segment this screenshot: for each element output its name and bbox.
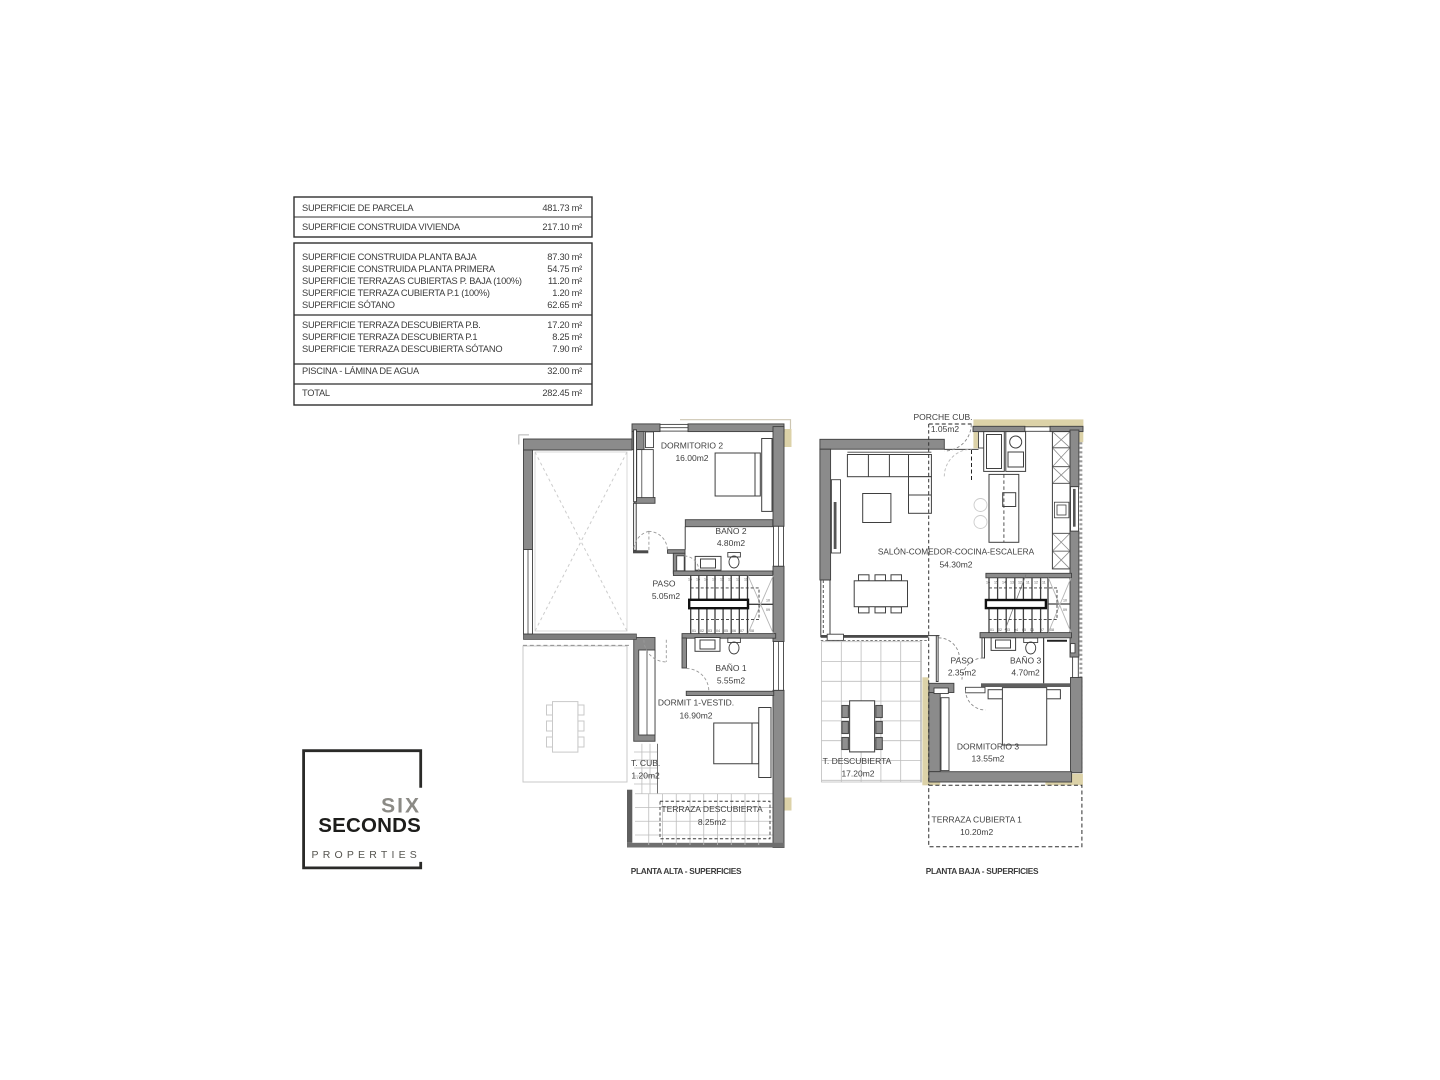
svg-text:12: 12 xyxy=(1034,581,1038,585)
svg-text:SUPERFICIE TERRAZAS CUBIERTAS: SUPERFICIE TERRAZAS CUBIERTAS P. BAJA (1… xyxy=(302,276,522,286)
svg-text:DORMIT 1-VESTID.: DORMIT 1-VESTID. xyxy=(658,698,734,708)
svg-text:17.20m2: 17.20m2 xyxy=(841,769,874,779)
svg-text:PASO: PASO xyxy=(951,656,974,666)
svg-text:DORMITORIO 2: DORMITORIO 2 xyxy=(661,441,723,451)
svg-text:8.25m2: 8.25m2 xyxy=(698,817,727,827)
svg-text:BAÑO 3: BAÑO 3 xyxy=(1010,656,1041,666)
svg-text:7.90 m²: 7.90 m² xyxy=(552,344,582,354)
svg-text:12: 12 xyxy=(720,578,724,582)
svg-text:SUPERFICIE TERRAZA DESCUBIERTA: SUPERFICIE TERRAZA DESCUBIERTA P.1 xyxy=(302,332,477,342)
svg-text:11.20 m²: 11.20 m² xyxy=(548,276,582,286)
svg-text:2.35m2: 2.35m2 xyxy=(948,668,977,678)
svg-text:SUPERFICIE DE PARCELA: SUPERFICIE DE PARCELA xyxy=(302,203,414,213)
svg-text:SUPERFICIE CONSTRUIDA PLANTA B: SUPERFICIE CONSTRUIDA PLANTA BAJA xyxy=(302,252,478,262)
svg-text:03: 03 xyxy=(1006,628,1010,632)
svg-text:1.20 m²: 1.20 m² xyxy=(552,288,582,298)
svg-text:06: 06 xyxy=(1030,628,1034,632)
svg-text:13.55m2: 13.55m2 xyxy=(971,754,1004,764)
svg-text:SUPERFICIE TERRAZA DESCUBIERTA: SUPERFICIE TERRAZA DESCUBIERTA SÓTANO xyxy=(302,344,502,354)
svg-text:14: 14 xyxy=(1002,581,1006,585)
svg-text:16: 16 xyxy=(986,581,990,585)
svg-text:05: 05 xyxy=(724,629,728,633)
svg-text:06: 06 xyxy=(732,629,736,633)
svg-text:15: 15 xyxy=(994,581,998,585)
svg-text:TERRAZA CUBIERTA 1: TERRAZA CUBIERTA 1 xyxy=(932,815,1023,825)
svg-text:TOTAL: TOTAL xyxy=(302,388,330,398)
svg-text:PLANTA BAJA - SUPERFICIES: PLANTA BAJA - SUPERFICIES xyxy=(926,866,1039,876)
svg-text:5.05m2: 5.05m2 xyxy=(652,591,681,601)
svg-text:54.75 m²: 54.75 m² xyxy=(547,264,582,274)
svg-text:SECONDS: SECONDS xyxy=(318,814,421,837)
svg-text:11: 11 xyxy=(1042,581,1046,585)
svg-text:05: 05 xyxy=(1022,628,1026,632)
svg-text:13: 13 xyxy=(712,578,716,582)
svg-text:13: 13 xyxy=(1010,581,1014,585)
svg-text:08: 08 xyxy=(1050,628,1054,632)
svg-text:54.30m2: 54.30m2 xyxy=(939,560,972,570)
svg-text:01: 01 xyxy=(692,629,696,633)
svg-text:DORMITORIO 3: DORMITORIO 3 xyxy=(957,742,1019,752)
svg-text:481.73 m²: 481.73 m² xyxy=(542,203,582,213)
svg-text:PLANTA ALTA - SUPERFICIES: PLANTA ALTA - SUPERFICIES xyxy=(631,866,742,876)
svg-text:10: 10 xyxy=(1063,599,1067,603)
svg-text:32.00 m²: 32.00 m² xyxy=(547,366,582,376)
svg-text:10.20m2: 10.20m2 xyxy=(960,827,993,837)
svg-text:16.90m2: 16.90m2 xyxy=(679,711,712,721)
svg-text:SUPERFICIE CONSTRUIDA VIVIENDA: SUPERFICIE CONSTRUIDA VIVIENDA xyxy=(302,222,461,232)
svg-text:11: 11 xyxy=(728,578,732,582)
svg-text:11: 11 xyxy=(744,578,748,582)
svg-text:08: 08 xyxy=(750,629,754,633)
svg-text:02: 02 xyxy=(700,629,704,633)
svg-text:282.45 m²: 282.45 m² xyxy=(542,388,582,398)
svg-text:15: 15 xyxy=(696,578,700,582)
svg-text:PORCHE CUB.: PORCHE CUB. xyxy=(913,412,972,422)
svg-text:16.00m2: 16.00m2 xyxy=(675,453,708,463)
svg-text:12: 12 xyxy=(736,578,740,582)
svg-text:SUPERFICIE TERRAZA DESCUBIERTA: SUPERFICIE TERRAZA DESCUBIERTA P.B. xyxy=(302,320,481,330)
svg-text:SUPERFICIE TERRAZA CUBIERTA P.: SUPERFICIE TERRAZA CUBIERTA P.1 (100%) xyxy=(302,288,490,298)
svg-text:217.10 m²: 217.10 m² xyxy=(542,222,582,232)
svg-text:BAÑO 1: BAÑO 1 xyxy=(715,663,746,673)
svg-text:09: 09 xyxy=(766,608,770,612)
svg-text:PISCINA - LÁMINA DE AGUA: PISCINA - LÁMINA DE AGUA xyxy=(302,366,420,376)
svg-text:1.05m2: 1.05m2 xyxy=(931,424,960,434)
svg-text:12: 12 xyxy=(1018,581,1022,585)
svg-text:03: 03 xyxy=(708,629,712,633)
svg-text:16: 16 xyxy=(688,578,692,582)
svg-text:17.20 m²: 17.20 m² xyxy=(547,320,582,330)
svg-text:SALÓN-COMEDOR-COCINA-ESCALERA: SALÓN-COMEDOR-COCINA-ESCALERA xyxy=(878,547,1035,557)
svg-text:PASO: PASO xyxy=(653,579,676,589)
svg-text:01: 01 xyxy=(990,628,994,632)
svg-text:5.55m2: 5.55m2 xyxy=(717,676,746,686)
svg-text:BAÑO 2: BAÑO 2 xyxy=(715,526,746,536)
svg-text:TERRAZA DESCUBIERTA: TERRAZA DESCUBIERTA xyxy=(661,804,763,814)
svg-text:PROPERTIES: PROPERTIES xyxy=(312,849,422,861)
svg-text:4.80m2: 4.80m2 xyxy=(717,538,746,548)
svg-text:07: 07 xyxy=(1040,628,1044,632)
svg-text:4.70m2: 4.70m2 xyxy=(1011,668,1040,678)
svg-text:04: 04 xyxy=(716,629,720,633)
svg-text:87.30 m²: 87.30 m² xyxy=(547,252,582,262)
svg-text:02: 02 xyxy=(998,628,1002,632)
svg-text:14: 14 xyxy=(704,578,708,582)
svg-text:1.20m2: 1.20m2 xyxy=(631,771,660,781)
svg-text:09: 09 xyxy=(1063,608,1067,612)
svg-text:T. DESCUBIERTA: T. DESCUBIERTA xyxy=(823,756,892,766)
svg-text:04: 04 xyxy=(1014,628,1018,632)
svg-text:SUPERFICIE SÓTANO: SUPERFICIE SÓTANO xyxy=(302,300,395,310)
svg-text:62.65 m²: 62.65 m² xyxy=(547,300,582,310)
svg-text:10: 10 xyxy=(766,599,770,603)
svg-text:11: 11 xyxy=(1026,581,1030,585)
svg-text:07: 07 xyxy=(740,629,744,633)
svg-text:T. CUB.: T. CUB. xyxy=(631,758,660,768)
svg-text:8.25 m²: 8.25 m² xyxy=(552,332,582,342)
svg-text:SUPERFICIE CONSTRUIDA PLANTA P: SUPERFICIE CONSTRUIDA PLANTA PRIMERA xyxy=(302,264,496,274)
